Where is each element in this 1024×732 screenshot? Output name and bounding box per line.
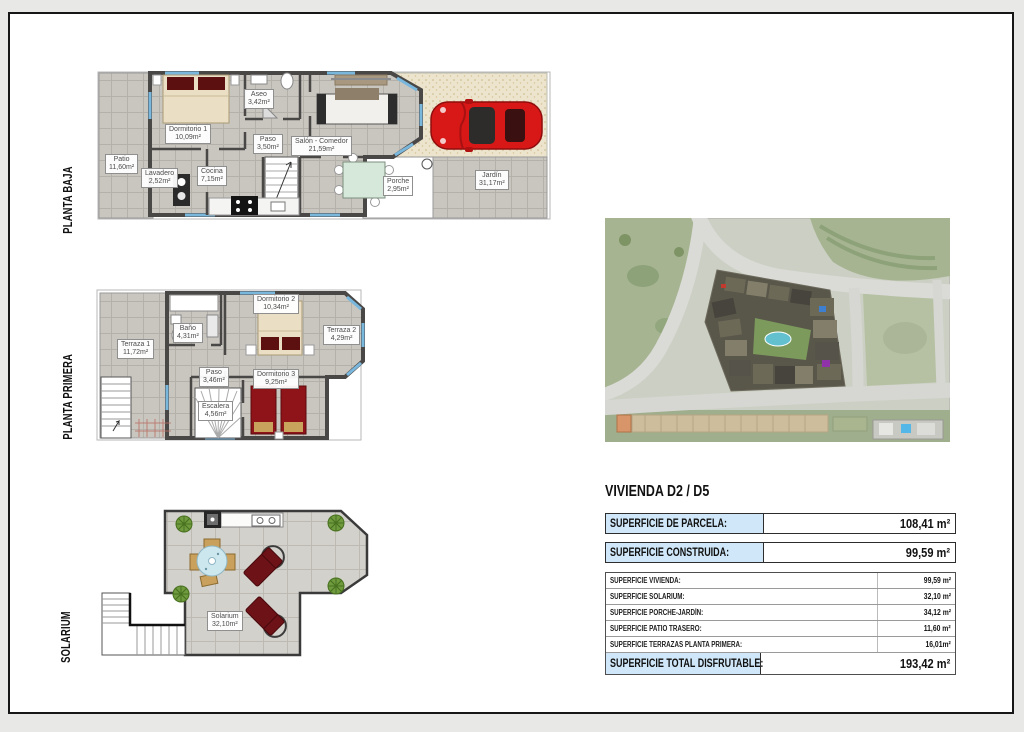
row-value: 99,59 m² <box>764 543 955 562</box>
solarium-stairs <box>102 593 185 655</box>
row-superficie-vivienda: SUPERFICIE VIVIENDA: 99,59 m² <box>606 573 955 589</box>
row-label: SUPERFICIE DE PARCELA: <box>606 514 764 533</box>
floor-label-planta-primera: PLANTA PRIMERA <box>61 360 75 439</box>
room-label-lavadero: Lavadero2,52m² <box>141 168 178 188</box>
site-map-drawing <box>605 218 950 442</box>
room-label-porche: Porche2,95m² <box>383 176 413 196</box>
room-label-cocina: Cocina7,15m² <box>197 166 227 186</box>
plan-sheet: PLANTA BAJA PLANTA PRIMERA SOLARIUM <box>8 12 1014 714</box>
room-label-terraza-2: Terraza 24,29m² <box>323 325 360 345</box>
row-value: 108,41 m² <box>764 514 955 533</box>
room-label-aseo: Aseo3,42m² <box>244 89 274 109</box>
floor-plan-planta-primera: Terraza 111,72m² Baño4,31m² Dormitorio 2… <box>95 285 370 453</box>
kitchen-counter <box>209 196 299 215</box>
summary-title: VIVIENDA D2 / D5 <box>605 483 956 501</box>
room-label-dormitorio-1: Dormitorio 110,09m² <box>165 124 211 144</box>
room-label-bano: Baño4,31m² <box>173 323 203 343</box>
room-label-jardin: Jardín31,17m² <box>475 170 509 190</box>
room-label-patio: Patio11,60m² <box>105 154 138 174</box>
room-label-escalera: Escalera4,56m² <box>198 401 233 421</box>
room-label-dormitorio-2: Dormitorio 210,34m² <box>253 294 299 314</box>
room-label-paso: Paso3,50m² <box>253 134 283 154</box>
car-icon <box>431 99 542 152</box>
row-superficie-construida: SUPERFICIE CONSTRUIDA: 99,59 m² <box>605 542 956 563</box>
floor-plan-solarium: Solarium32,10m² <box>95 497 395 672</box>
site-aerial-map <box>605 218 950 442</box>
bed-dormitorio-1 <box>153 75 239 123</box>
porche-light <box>422 159 432 169</box>
row-superficie-terrazas: SUPERFICIE TERRAZAS PLANTA PRIMERA: 16,0… <box>606 637 955 653</box>
surface-detail-table: SUPERFICIE VIVIENDA: 99,59 m² SUPERFICIE… <box>605 572 956 675</box>
row-label: SUPERFICIE CONSTRUIDA: <box>606 543 764 562</box>
solarium-counter <box>204 511 283 528</box>
room-label-solarium: Solarium32,10m² <box>207 611 243 631</box>
planta-primera-drawing <box>95 285 370 453</box>
floor-plan-planta-baja: Dormitorio 110,09m² Aseo3,42m² Paso3,50m… <box>95 64 555 227</box>
room-label-salon-comedor: Salón - Comedor21,59m² <box>291 136 352 156</box>
floor-label-planta-baja: PLANTA BAJA <box>61 160 75 239</box>
row-superficie-parcela: SUPERFICIE DE PARCELA: 108,41 m² <box>605 513 956 534</box>
row-superficie-total: SUPERFICIE TOTAL DISFRUTABLE: 193,42 m² <box>606 653 955 674</box>
pool <box>765 332 791 346</box>
room-label-paso-p1: Paso3,46m² <box>199 367 229 387</box>
surface-summary: VIVIENDA D2 / D5 SUPERFICIE DE PARCELA: … <box>605 483 956 675</box>
row-superficie-solarium: SUPERFICIE SOLARIUM: 32,10 m² <box>606 589 955 605</box>
room-label-dormitorio-3: Dormitorio 39,25m² <box>253 369 299 389</box>
row-superficie-porche-jardin: SUPERFICIE PORCHE-JARDÍN: 34,12 m² <box>606 605 955 621</box>
floor-label-solarium: SOLARIUM <box>59 597 73 676</box>
solarium-drawing <box>95 497 395 672</box>
row-superficie-patio-trasero: SUPERFICIE PATIO TRASERO: 11,60 m² <box>606 621 955 637</box>
room-label-terraza-1: Terraza 111,72m² <box>117 339 154 359</box>
